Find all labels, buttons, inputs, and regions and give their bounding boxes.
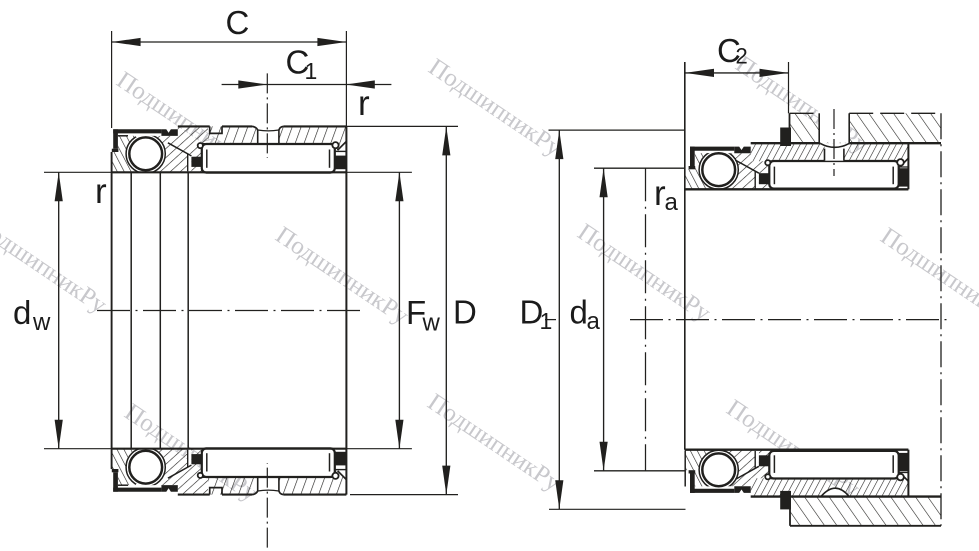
svg-text:D: D (453, 294, 477, 331)
svg-text:d: d (13, 294, 31, 331)
svg-text:r: r (95, 172, 107, 211)
svg-text:w: w (422, 310, 441, 337)
svg-text:C: C (226, 4, 250, 41)
svg-text:2: 2 (736, 44, 748, 69)
svg-text:a: a (587, 308, 601, 335)
svg-text:a: a (665, 189, 679, 216)
svg-text:r: r (358, 84, 370, 123)
svg-text:d: d (570, 294, 588, 331)
svg-text:1: 1 (540, 308, 553, 334)
svg-text:1: 1 (305, 58, 318, 84)
svg-text:w: w (32, 309, 51, 336)
